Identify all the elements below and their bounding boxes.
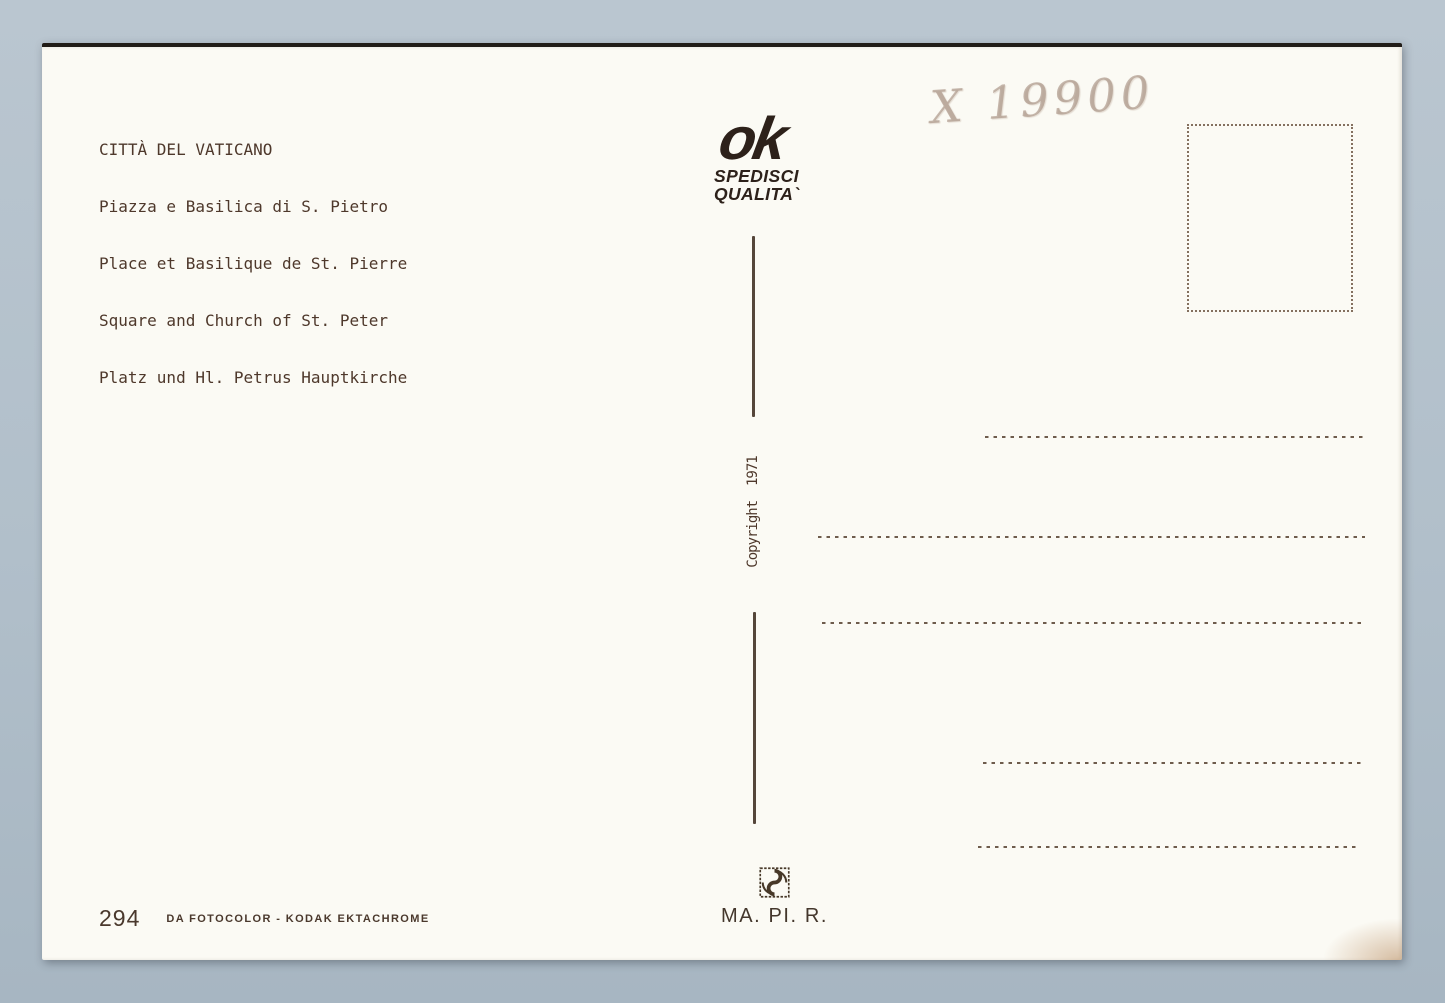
caption-line: CITTÀ DEL VATICANO: [99, 140, 407, 159]
address-line-1: [985, 436, 1365, 438]
film-credit: DA FOTOCOLOR - KODAK EKTACHROME: [166, 913, 429, 925]
caption-line: Square and Church of St. Peter: [99, 311, 407, 330]
address-line-2: [818, 536, 1365, 538]
address-line-4: [983, 762, 1365, 764]
handwritten-inventory-number: X 19900: [928, 65, 1161, 134]
caption-line: Place et Basilique de St. Pierre: [99, 254, 407, 273]
ok-quality-logo: ok SPEDISCI QUALITA`: [714, 111, 844, 203]
caption-line: Platz und Hl. Petrus Hauptkirche: [99, 368, 407, 387]
center-divider-lower: [753, 612, 756, 824]
copyright-notice: Copyright 1971: [745, 437, 763, 587]
caption-block: CITTÀ DEL VATICANO Piazza e Basilica di …: [99, 102, 407, 425]
address-line-5: [978, 846, 1360, 848]
caption-line: Piazza e Basilica di S. Pietro: [99, 197, 407, 216]
postcard-back: CITTÀ DEL VATICANO Piazza e Basilica di …: [42, 43, 1402, 960]
card-number: 294: [99, 905, 140, 931]
address-line-3: [822, 622, 1362, 624]
scan-background: CITTÀ DEL VATICANO Piazza e Basilica di …: [0, 0, 1445, 1003]
publisher-tagline-line2: QUALITA`: [714, 185, 844, 203]
ok-logo-text: ok: [715, 111, 849, 167]
printer-brand: MA. PI. R.: [692, 905, 857, 928]
mapir-emblem-icon: [759, 867, 790, 898]
printer-mark: MA. PI. R.: [692, 867, 857, 928]
stamp-box: [1187, 124, 1353, 312]
corner-stain: [1322, 918, 1402, 960]
credits-block: 294DA FOTOCOLOR - KODAK EKTACHROME: [99, 905, 430, 932]
center-divider-upper: [752, 236, 755, 417]
